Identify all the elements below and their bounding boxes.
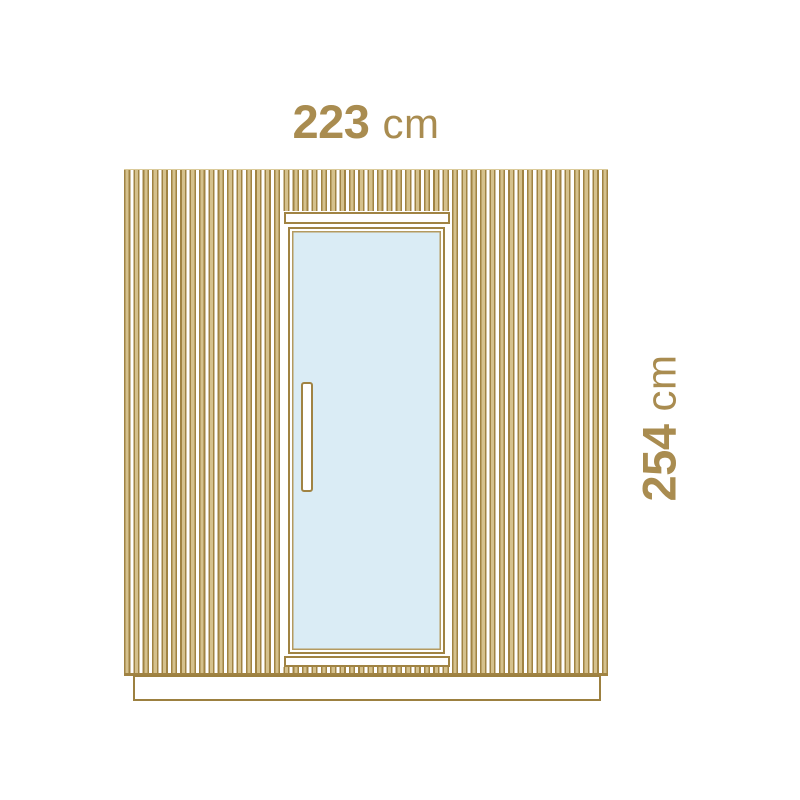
height-dimension-label: 254cm xyxy=(636,355,683,502)
height-value: 254 xyxy=(633,425,686,502)
door-handle xyxy=(301,382,313,492)
width-value: 223 xyxy=(293,95,370,148)
door-sill xyxy=(284,656,450,667)
height-unit: cm xyxy=(638,355,685,412)
width-unit: cm xyxy=(382,100,439,147)
width-dimension-label: 223cm xyxy=(124,98,608,145)
door-lintel xyxy=(284,212,450,224)
diagram-canvas: 223cm 254cm xyxy=(0,0,800,800)
base-plinth xyxy=(133,675,601,701)
